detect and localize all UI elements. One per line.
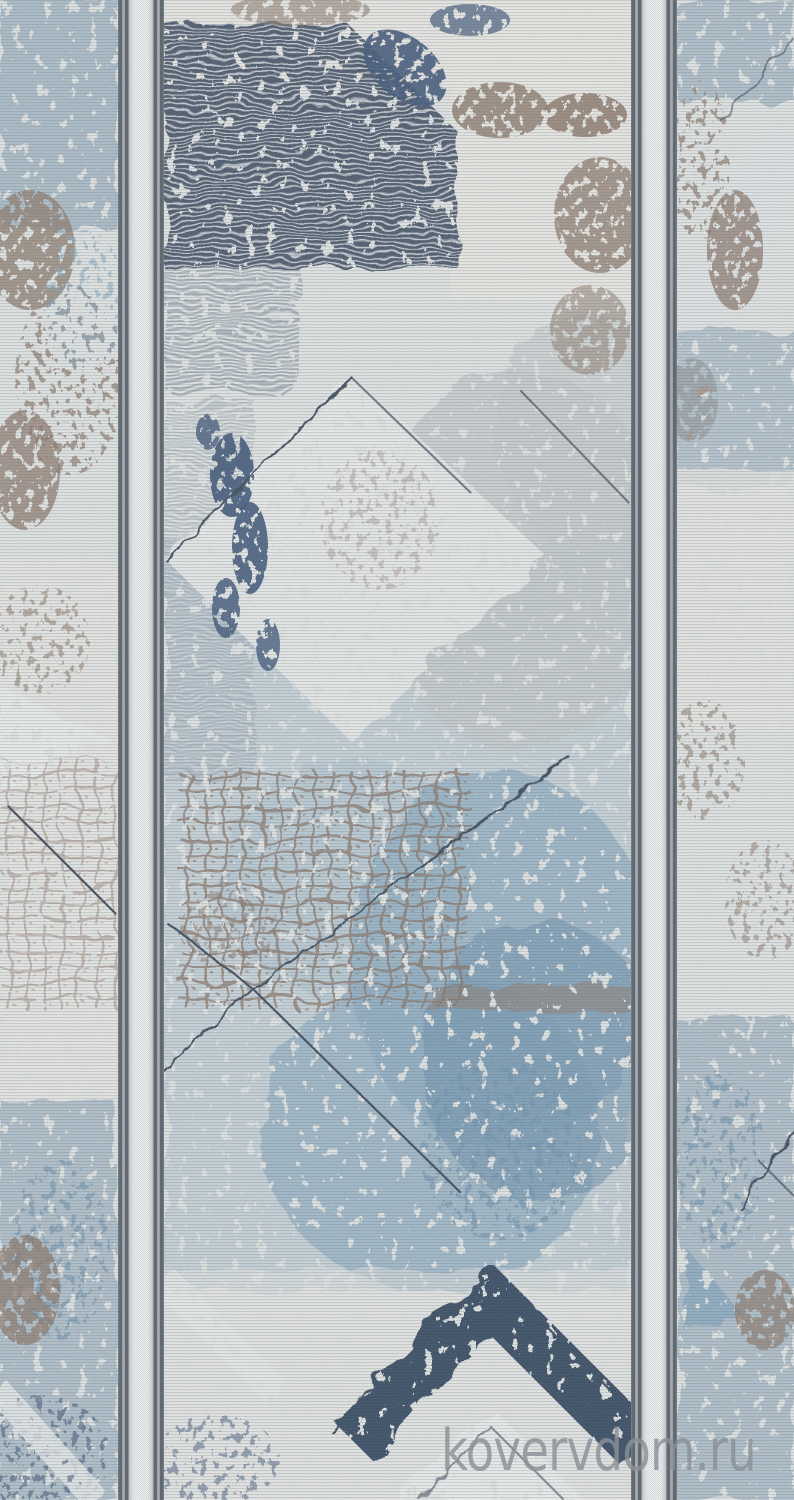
carpet-photo: kovervdom.ru: [0, 0, 794, 1500]
watermark-text: kovervdom.ru: [441, 1421, 756, 1483]
grain-overlay: [0, 0, 794, 1500]
carpet-art: [0, 0, 794, 1500]
